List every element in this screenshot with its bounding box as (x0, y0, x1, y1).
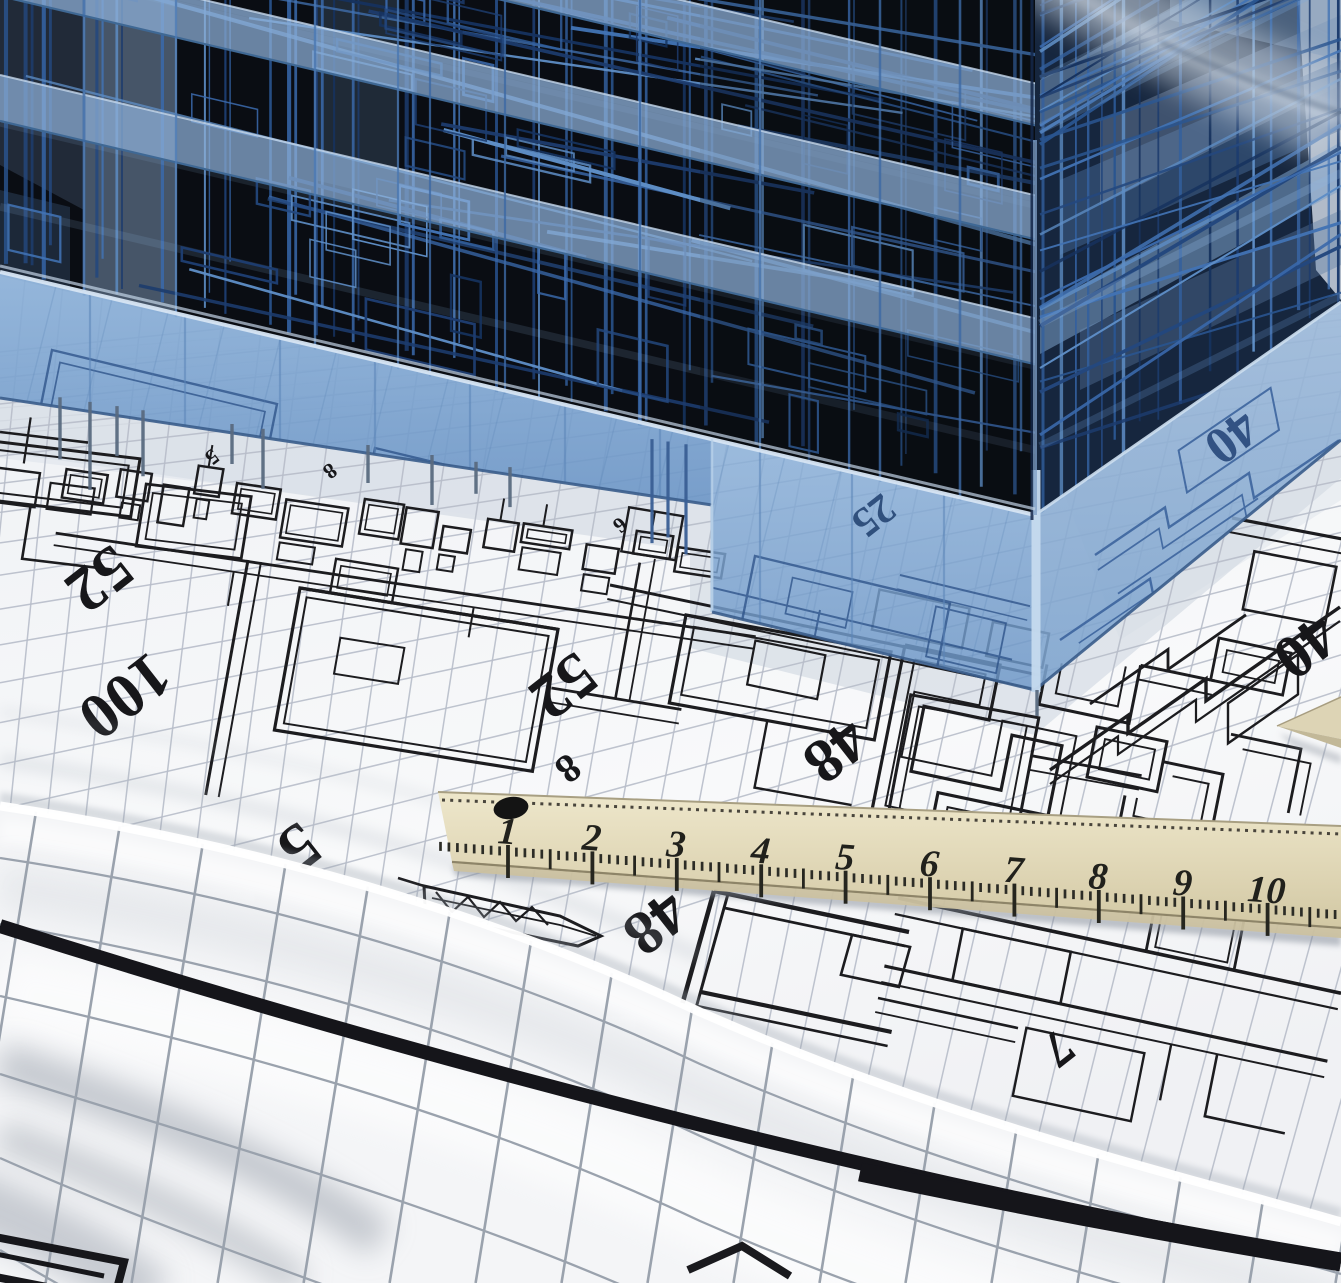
svg-text:10: 10 (1246, 868, 1287, 913)
svg-text:9: 9 (1171, 862, 1193, 905)
svg-text:4: 4 (748, 829, 771, 872)
svg-text:5: 5 (834, 836, 856, 879)
svg-text:3: 3 (664, 823, 687, 866)
svg-text:2: 2 (580, 816, 603, 859)
svg-text:8: 8 (1087, 855, 1109, 898)
svg-text:1: 1 (496, 810, 518, 853)
svg-text:6: 6 (918, 842, 940, 885)
